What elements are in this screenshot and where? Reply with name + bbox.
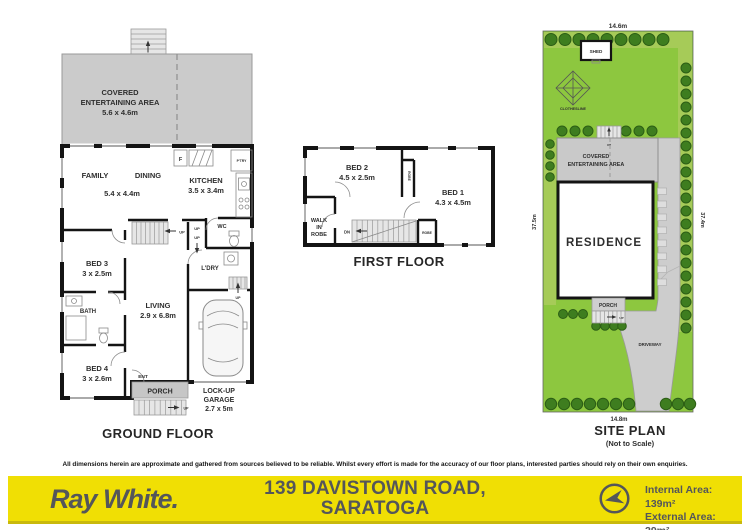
- gf-living-label: LIVING: [145, 301, 170, 310]
- gf-garage-up-label: UP: [236, 296, 242, 300]
- gf-family-label: FAMILY: [82, 171, 109, 180]
- gf-covered-size: 5.6 x 4.6m: [102, 108, 138, 117]
- gf-porch-label: PORCH: [147, 389, 172, 396]
- floorplan-page: UP COVERED ENTERTAINING AREA 5.6 x 4.6m: [0, 0, 750, 530]
- site-dim-left: 37.5m: [532, 214, 538, 230]
- gf-covered-label-2: ENTERTAINING AREA: [81, 98, 160, 107]
- ff-wir-label-2: IN: [316, 225, 322, 231]
- gf-covered-entertaining-area: COVERED ENTERTAINING AREA 5.6 x 4.6m: [62, 54, 252, 146]
- gf-wc-label: WC: [217, 224, 226, 230]
- gf-dining-label: DINING: [135, 171, 161, 180]
- site-porch-label: PORCH: [599, 303, 617, 309]
- plans-canvas: UP COVERED ENTERTAINING AREA 5.6 x 4.6m: [0, 0, 750, 455]
- site-covered-label-2: ENTERTAINING AREA: [568, 162, 625, 168]
- site-covered-label-1: COVERED: [583, 154, 610, 160]
- first-floor-caption: FIRST FLOOR: [353, 254, 444, 269]
- gf-kitchen-size: 3.5 x 3.4m: [188, 186, 224, 195]
- site-shed: SHED: [581, 41, 611, 63]
- site-plan-caption: SITE PLAN: [594, 423, 666, 438]
- first-floor-plan: DN ROBE ROBE BED 2 4.5 x 2.5m BED 1 4.3 …: [305, 148, 493, 269]
- address-line-2: SARATOGA: [8, 499, 742, 519]
- site-dim-top: 14.6m: [609, 23, 628, 30]
- gf-bath-label: BATH: [80, 309, 96, 315]
- gf-garage-label-1: LOCK-UP: [203, 388, 235, 395]
- gf-stairs-up-label-1: UP: [179, 230, 185, 235]
- site-driveway-label: DRIVEWAY: [638, 342, 661, 347]
- gf-bed3-label: BED 3: [86, 259, 108, 268]
- site-dim-right: 37.4m: [699, 212, 705, 228]
- disclaimer-text: All dimensions herein are approximate an…: [0, 461, 750, 468]
- area-summary: Internal Area: 139m² External Area: 29m²: [645, 484, 742, 530]
- ff-dn-label: DN: [344, 230, 350, 235]
- gf-stairs-up-label-3: UP: [194, 235, 200, 240]
- gf-bed3-size: 3 x 2.5m: [82, 269, 112, 278]
- gf-covered-label-1: COVERED: [101, 88, 139, 97]
- ff-bed2-size: 4.5 x 2.5m: [339, 173, 375, 182]
- ff-wir-label-1: WALK: [311, 218, 327, 224]
- site-clothesline-label: CLOTHESLINE: [560, 107, 587, 111]
- ff-stairs: DN: [344, 220, 416, 242]
- external-area: External Area: 29m²: [645, 511, 742, 530]
- gf-living-size: 2.9 x 6.8m: [140, 311, 176, 320]
- gf-ent-label: ENT: [138, 374, 148, 380]
- ff-bed2-label: BED 2: [346, 163, 368, 172]
- gf-bed4-label: BED 4: [86, 364, 109, 373]
- ff-bed1-label: BED 1: [442, 188, 464, 197]
- gf-car: [199, 300, 247, 376]
- gf-garage-label-2: GARAGE: [204, 397, 235, 404]
- ground-floor-caption: GROUND FLOOR: [102, 426, 214, 441]
- gf-porch-up-label: UP: [184, 407, 190, 411]
- ff-wir-label-3: ROBE: [311, 232, 327, 238]
- address-line-1: 139 DAVISTOWN ROAD,: [8, 479, 742, 499]
- ground-floor-plan: UP COVERED ENTERTAINING AREA 5.6 x 4.6m: [62, 29, 252, 441]
- site-porch: PORCH UP: [592, 298, 625, 323]
- ff-robe-vertical-label: ROBE: [407, 171, 411, 182]
- ff-robe-label: ROBE: [422, 231, 433, 235]
- gf-kitchen-label: KITCHEN: [189, 176, 222, 185]
- property-address: 139 DAVISTOWN ROAD, SARATOGA: [8, 479, 742, 519]
- footer-band: Ray White. 139 DAVISTOWN ROAD, SARATOGA …: [8, 476, 742, 524]
- gf-family-dining-size: 5.4 x 4.4m: [104, 189, 140, 198]
- site-residence-label: RESIDENCE: [566, 237, 642, 249]
- gf-laundry-label: L'DRY: [201, 266, 219, 272]
- gf-pantry-label: P'TRY: [237, 159, 247, 163]
- internal-area: Internal Area: 139m²: [645, 484, 742, 511]
- gf-garage-size: 2.7 x 5m: [205, 406, 233, 413]
- ff-bed1-size: 4.3 x 4.5m: [435, 198, 471, 207]
- site-plan-scale-note: (Not to Scale): [606, 439, 655, 448]
- site-plan: 14.6m: [532, 23, 705, 448]
- gf-porch: PORCH UP: [132, 382, 189, 415]
- site-shed-label: SHED: [590, 49, 603, 54]
- gf-stairs-up-label-2: UP: [194, 226, 200, 231]
- gf-bed4-size: 3 x 2.6m: [82, 374, 112, 383]
- compass-icon: [598, 482, 631, 515]
- site-porch-up-label: UP: [619, 316, 623, 320]
